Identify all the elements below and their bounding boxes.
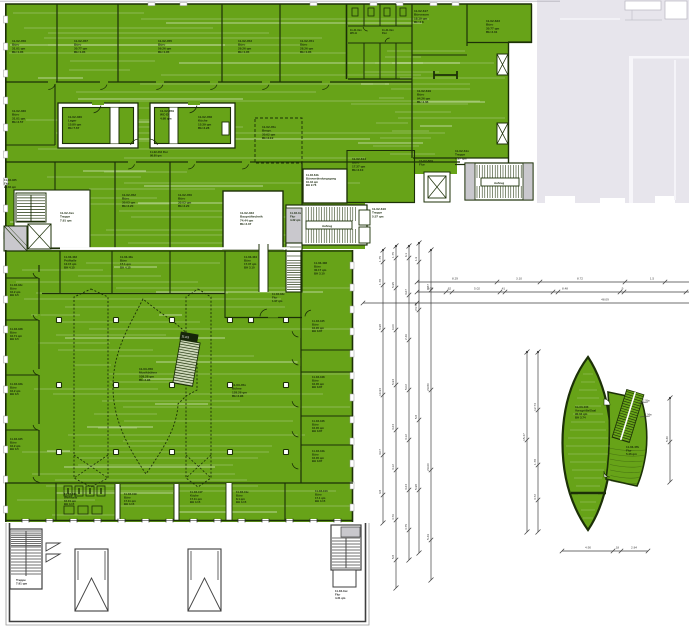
svg-text:3.12: 3.12 [404, 434, 408, 440]
svg-text:3.12: 3.12 [391, 464, 395, 470]
svg-text:48.09: 48.09 [601, 298, 609, 302]
svg-text:Treppe7.91 qm: Treppe7.91 qm [16, 578, 28, 586]
svg-text:5.95: 5.95 [391, 282, 395, 288]
svg-text:1.75: 1.75 [391, 252, 395, 258]
svg-text:1.78: 1.78 [378, 279, 382, 285]
svg-text:5.93: 5.93 [391, 379, 395, 385]
svg-text:4.90: 4.90 [585, 546, 591, 550]
svg-text:Aufzug: Aufzug [322, 224, 332, 228]
svg-text:5.02: 5.02 [404, 384, 408, 390]
svg-text:10.93: 10.93 [378, 388, 382, 396]
svg-text:3.23: 3.23 [404, 484, 408, 490]
svg-text:6.1: 6.1 [404, 253, 408, 258]
svg-text:1.04m: 1.04m [645, 414, 652, 417]
svg-text:Aufzug: Aufzug [494, 181, 504, 185]
svg-text:29.80: 29.80 [426, 383, 430, 391]
svg-text:3.8: 3.8 [378, 490, 382, 495]
svg-text:1.5: 1.5 [650, 277, 655, 281]
svg-text:5.30: 5.30 [665, 436, 669, 442]
svg-text:12.73: 12.73 [533, 403, 537, 411]
svg-text:3.23: 3.23 [391, 424, 395, 430]
svg-text:.9: .9 [621, 287, 624, 291]
svg-text:5.98: 5.98 [378, 324, 382, 330]
svg-text:4.76: 4.76 [391, 514, 395, 520]
svg-text:5.98: 5.98 [414, 484, 418, 490]
svg-text:5.8: 5.8 [414, 415, 418, 420]
svg-text:.18: .18 [615, 546, 620, 550]
svg-text:.41: .41 [501, 287, 506, 291]
svg-text:15.47: 15.47 [522, 433, 526, 441]
svg-text:3.07: 3.07 [378, 449, 382, 455]
svg-text:8.48: 8.48 [562, 287, 568, 291]
svg-text:3.72: 3.72 [533, 494, 537, 500]
svg-text:8.72: 8.72 [577, 277, 583, 281]
svg-text:2.84: 2.84 [631, 546, 637, 550]
svg-text:2.09m: 2.09m [643, 400, 650, 403]
svg-text:2.46: 2.46 [404, 334, 408, 340]
svg-text:4.75: 4.75 [404, 524, 408, 530]
svg-text:1.9: 1.9 [414, 257, 418, 262]
svg-text:8.29: 8.29 [452, 277, 458, 281]
svg-text:3.00: 3.00 [427, 287, 433, 291]
svg-text:3.67: 3.67 [404, 289, 408, 295]
svg-text:.62: .62 [447, 287, 452, 291]
svg-text:5.8: 5.8 [391, 555, 395, 560]
svg-text:3.10: 3.10 [516, 277, 522, 281]
svg-text:1.75: 1.75 [378, 256, 382, 262]
svg-text:5.02: 5.02 [474, 287, 480, 291]
svg-text:29.60: 29.60 [426, 463, 430, 471]
svg-text:6.00: 6.00 [391, 324, 395, 330]
svg-text:5.49: 5.49 [426, 534, 430, 540]
svg-text:1.78: 1.78 [533, 459, 537, 465]
